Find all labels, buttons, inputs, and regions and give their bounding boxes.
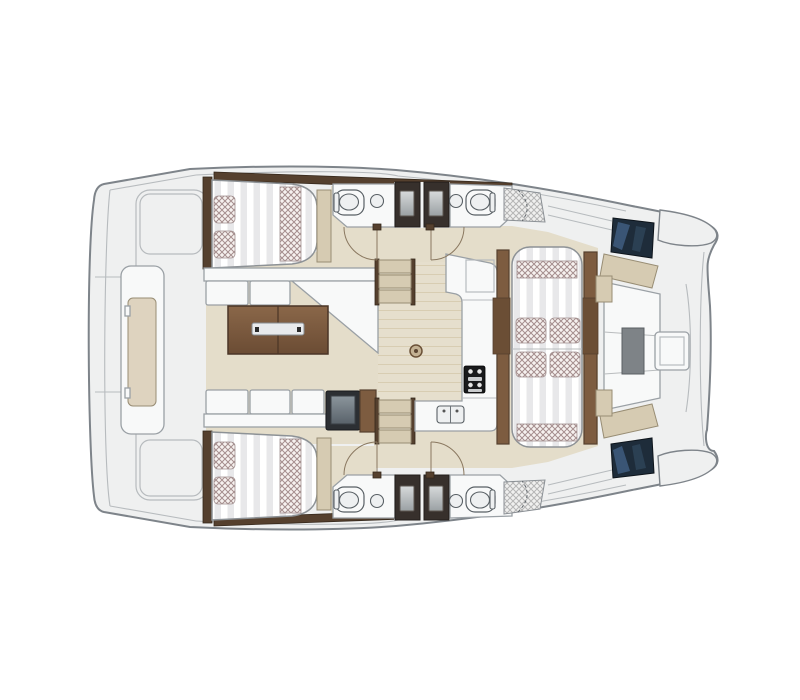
berth-runner: [280, 439, 301, 513]
pillow: [214, 196, 235, 223]
stove-knob: [468, 383, 472, 387]
catamaran-floor-plan: [0, 0, 800, 700]
stairs-starboard: [375, 398, 415, 444]
toilet-tank: [334, 193, 339, 212]
vanity-mirror: [429, 486, 443, 511]
floor-hatch-dot: [414, 349, 418, 353]
dinette-cushion: [516, 352, 546, 377]
stair-rail: [411, 259, 415, 305]
stair-tread: [379, 400, 411, 413]
dinette-side-table-right: [582, 298, 598, 354]
door-hinge-stub: [373, 472, 381, 478]
dinette: [493, 247, 598, 447]
stove-knob: [468, 369, 472, 373]
toilet-tank: [334, 490, 339, 509]
sink-drain: [443, 410, 446, 413]
bench-cushion: [292, 390, 324, 414]
sink-icon: [371, 495, 384, 508]
toilet-tank: [490, 490, 495, 509]
pillow: [214, 442, 235, 469]
aft-bench-notch: [125, 388, 130, 398]
aft-bench-cushion: [128, 298, 156, 406]
stove-grate: [468, 377, 482, 381]
dinette-bolster: [517, 261, 577, 278]
cockpit-footwell: [622, 328, 644, 374]
stair-tread: [379, 430, 411, 443]
stove-knob: [477, 383, 481, 387]
berth-runner: [280, 187, 301, 261]
stove-grate: [468, 389, 482, 392]
bow-nose-top: [658, 210, 717, 246]
stair-tread: [379, 260, 411, 273]
bow-nose-bottom: [658, 450, 717, 486]
toilet-bowl: [340, 492, 359, 508]
sofa-backrest: [204, 268, 378, 281]
cockpit-backrest-side: [596, 276, 612, 302]
bench-cushion: [206, 390, 248, 414]
cockpit-backrest-side: [596, 390, 612, 416]
sink-icon: [450, 195, 463, 208]
toilet-bowl: [471, 492, 490, 508]
sink-drain: [456, 410, 459, 413]
headboard: [203, 431, 212, 523]
pillow: [214, 231, 235, 258]
sink-icon: [450, 495, 463, 508]
stair-tread: [379, 290, 411, 303]
bench-cushion: [250, 390, 290, 414]
table-hinge-pin: [297, 327, 301, 332]
door-hinge-stub: [426, 224, 434, 230]
vanity-mirror: [400, 191, 414, 216]
table-hinge: [252, 323, 304, 335]
toilet-bowl: [340, 194, 359, 210]
stair-tread: [379, 275, 411, 288]
vanity-mirror: [429, 191, 443, 216]
aft-bench-notch: [125, 306, 130, 316]
pillow: [214, 477, 235, 504]
sofa-cushion: [250, 281, 290, 305]
stove-knob: [477, 369, 481, 373]
cabinet-panel: [360, 390, 376, 432]
door-hinge-stub: [426, 472, 434, 478]
stair-rail: [375, 398, 379, 444]
dinette-cushion: [550, 352, 580, 377]
dinette-cushion: [550, 318, 580, 343]
stairs-port: [375, 259, 415, 305]
toilet-bowl: [471, 194, 490, 210]
headboard: [203, 177, 212, 269]
refrigerator-lid: [331, 396, 355, 424]
sofa-cushion: [206, 281, 248, 305]
toilet-tank: [490, 193, 495, 212]
stair-rail: [375, 259, 379, 305]
stair-tread: [379, 415, 411, 428]
bench-backrest: [204, 414, 326, 427]
vanity-mirror: [400, 486, 414, 511]
dinette-side-table-left: [493, 298, 510, 354]
door-hinge-stub: [373, 224, 381, 230]
berth-shelf: [317, 190, 331, 262]
dinette-cushion: [516, 318, 546, 343]
dinette-bolster: [517, 424, 577, 441]
table-hinge-pin: [255, 327, 259, 332]
floor-plan-canvas: [0, 0, 800, 700]
berth-shelf: [317, 438, 331, 510]
sink-icon: [371, 195, 384, 208]
